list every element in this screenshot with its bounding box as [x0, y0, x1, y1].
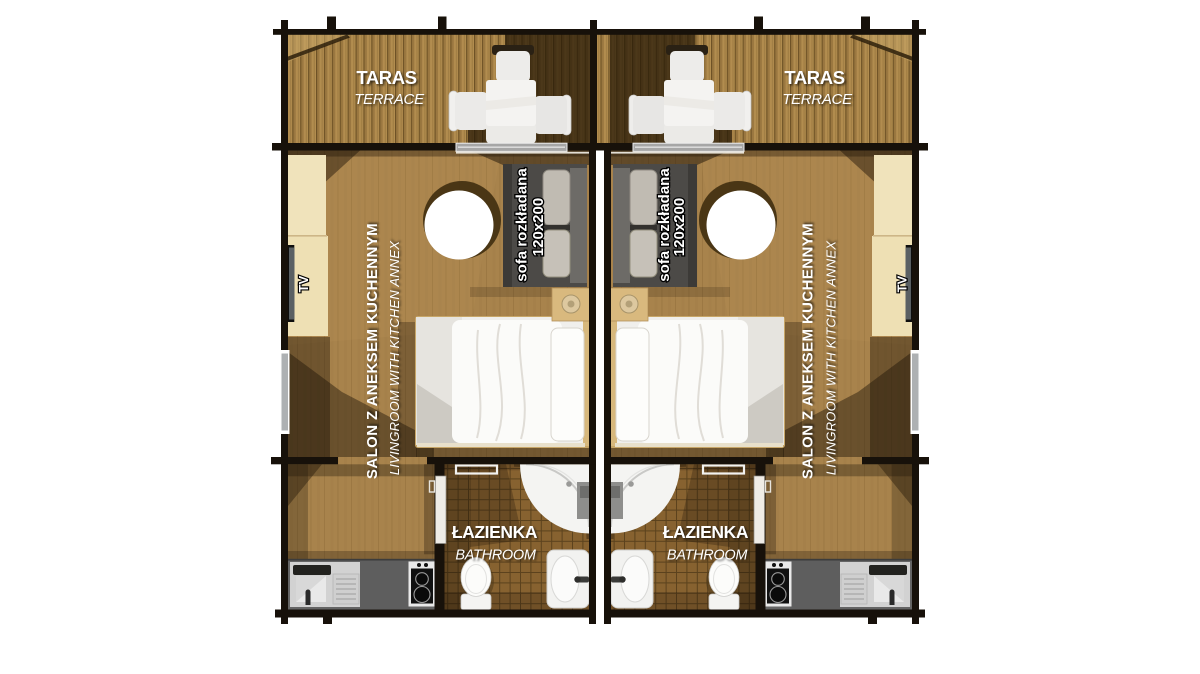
svg-text:120x200: 120x200	[671, 198, 688, 256]
svg-text:TV: TV	[895, 275, 910, 292]
svg-text:TV: TV	[296, 275, 311, 292]
svg-text:SALON Z ANEKSEM KUCHENNYM: SALON Z ANEKSEM KUCHENNYM	[364, 223, 381, 479]
svg-text:LIVINGROOM WITH KITCHEN ANNEX: LIVINGROOM WITH KITCHEN ANNEX	[824, 240, 839, 475]
svg-text:ŁAZIENKA: ŁAZIENKA	[452, 522, 538, 542]
svg-text:sofa rozkładana: sofa rozkładana	[514, 168, 531, 282]
svg-text:BATHROOM: BATHROOM	[667, 548, 749, 564]
svg-text:TARAS: TARAS	[784, 67, 844, 88]
svg-text:LIVINGROOM WITH KITCHEN ANNEX: LIVINGROOM WITH KITCHEN ANNEX	[387, 240, 402, 475]
svg-text:TERRACE: TERRACE	[354, 91, 425, 108]
svg-text:TARAS: TARAS	[356, 67, 416, 88]
svg-text:ŁAZIENKA: ŁAZIENKA	[663, 522, 749, 542]
svg-text:SALON Z ANEKSEM KUCHENNYM: SALON Z ANEKSEM KUCHENNYM	[800, 223, 817, 479]
svg-text:TERRACE: TERRACE	[782, 91, 853, 108]
svg-text:BATHROOM: BATHROOM	[455, 548, 537, 564]
svg-text:120x200: 120x200	[530, 198, 547, 256]
